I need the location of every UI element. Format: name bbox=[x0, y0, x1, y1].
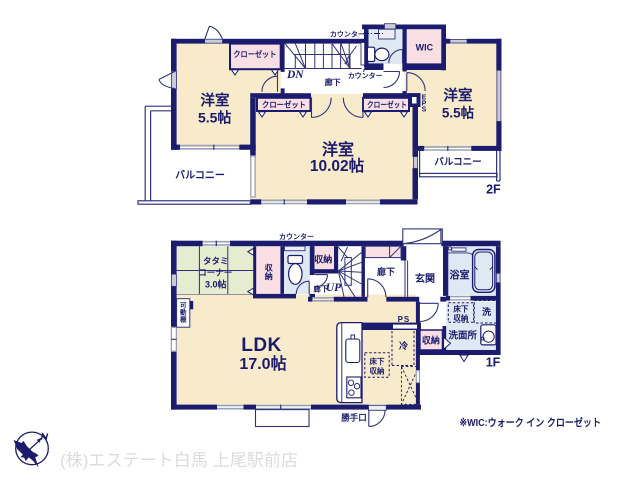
svg-text:S: S bbox=[422, 107, 427, 114]
svg-text:廊下: 廊下 bbox=[313, 284, 328, 294]
svg-text:3.0帖: 3.0帖 bbox=[205, 278, 227, 289]
svg-text:バルコニー: バルコニー bbox=[434, 156, 481, 168]
svg-text:床下: 床下 bbox=[370, 356, 385, 366]
svg-text:WIC: WIC bbox=[416, 43, 434, 53]
svg-text:可: 可 bbox=[180, 302, 187, 310]
svg-text:冷: 冷 bbox=[399, 340, 408, 351]
svg-text:棚: 棚 bbox=[180, 315, 187, 324]
svg-text:クローゼット: クローゼット bbox=[233, 49, 276, 59]
svg-text:収納: 収納 bbox=[314, 254, 332, 265]
svg-text:収納: 収納 bbox=[453, 313, 468, 323]
svg-text:5.5帖: 5.5帖 bbox=[198, 110, 231, 126]
svg-text:5.5帖: 5.5帖 bbox=[442, 105, 475, 121]
svg-text:タタミ: タタミ bbox=[203, 256, 229, 266]
svg-text:洗面所: 洗面所 bbox=[448, 330, 477, 342]
svg-text:納: 納 bbox=[265, 271, 273, 281]
svg-text:LDK: LDK bbox=[241, 335, 282, 356]
svg-text:(株)エステート白馬 上尾駅前店: (株)エステート白馬 上尾駅前店 bbox=[60, 451, 298, 470]
svg-text:カウンター: カウンター bbox=[348, 71, 383, 80]
svg-text:コーナー: コーナー bbox=[198, 267, 232, 277]
svg-text:カウンター: カウンター bbox=[330, 29, 365, 38]
svg-text:廊下: 廊下 bbox=[325, 77, 341, 87]
svg-text:PS: PS bbox=[398, 315, 411, 324]
svg-text:2F: 2F bbox=[486, 183, 501, 197]
svg-text:17.0帖: 17.0帖 bbox=[239, 354, 286, 373]
svg-text:洋室: 洋室 bbox=[201, 92, 230, 110]
svg-text:洋室: 洋室 bbox=[444, 86, 473, 104]
svg-text:カウンター: カウンター bbox=[279, 232, 314, 241]
svg-text:玄関: 玄関 bbox=[415, 272, 435, 285]
svg-text:クローゼット: クローゼット bbox=[262, 100, 306, 110]
svg-text:廊下: 廊下 bbox=[377, 266, 395, 277]
svg-text:洋室: 洋室 bbox=[322, 140, 354, 159]
svg-text:収: 収 bbox=[265, 263, 274, 273]
svg-text:勝手口: 勝手口 bbox=[341, 413, 367, 423]
svg-text:10.02帖: 10.02帖 bbox=[310, 156, 365, 175]
svg-text:浴室: 浴室 bbox=[450, 269, 470, 282]
svg-text:動: 動 bbox=[180, 308, 187, 317]
svg-text:※WIC:ウォーク イン クローゼット: ※WIC:ウォーク イン クローゼット bbox=[460, 416, 602, 429]
svg-text:収納: 収納 bbox=[370, 366, 385, 376]
svg-text:バルコニー: バルコニー bbox=[175, 170, 225, 182]
svg-text:DN: DN bbox=[286, 69, 304, 81]
svg-text:収納: 収納 bbox=[422, 334, 440, 345]
svg-text:洗: 洗 bbox=[482, 306, 491, 317]
svg-text:床下: 床下 bbox=[453, 304, 468, 314]
svg-text:1F: 1F bbox=[486, 356, 501, 370]
svg-text:クローゼット: クローゼット bbox=[367, 100, 407, 110]
